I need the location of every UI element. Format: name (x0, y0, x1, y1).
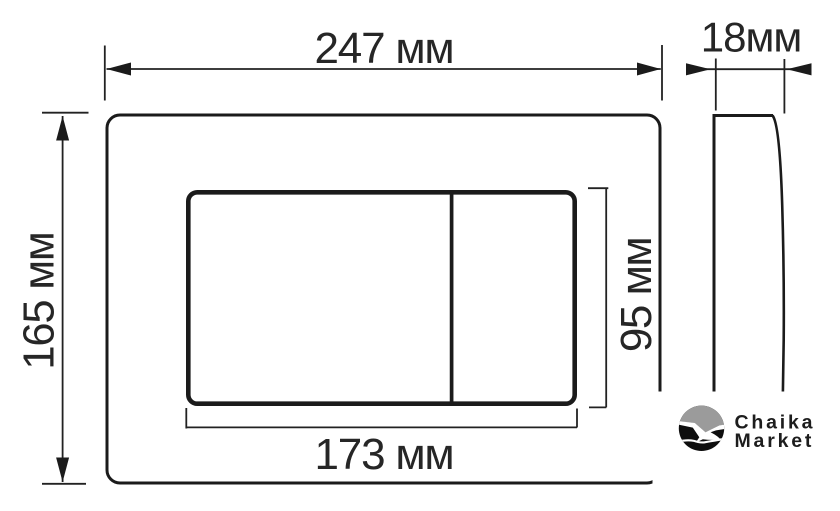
svg-text:95 мм: 95 мм (612, 238, 661, 352)
svg-text:247 мм: 247 мм (315, 24, 454, 73)
svg-text:Market: Market (735, 430, 815, 452)
svg-text:165 мм: 165 мм (16, 232, 64, 369)
svg-text:173 мм: 173 мм (315, 430, 454, 479)
svg-text:18мм: 18мм (701, 14, 801, 61)
